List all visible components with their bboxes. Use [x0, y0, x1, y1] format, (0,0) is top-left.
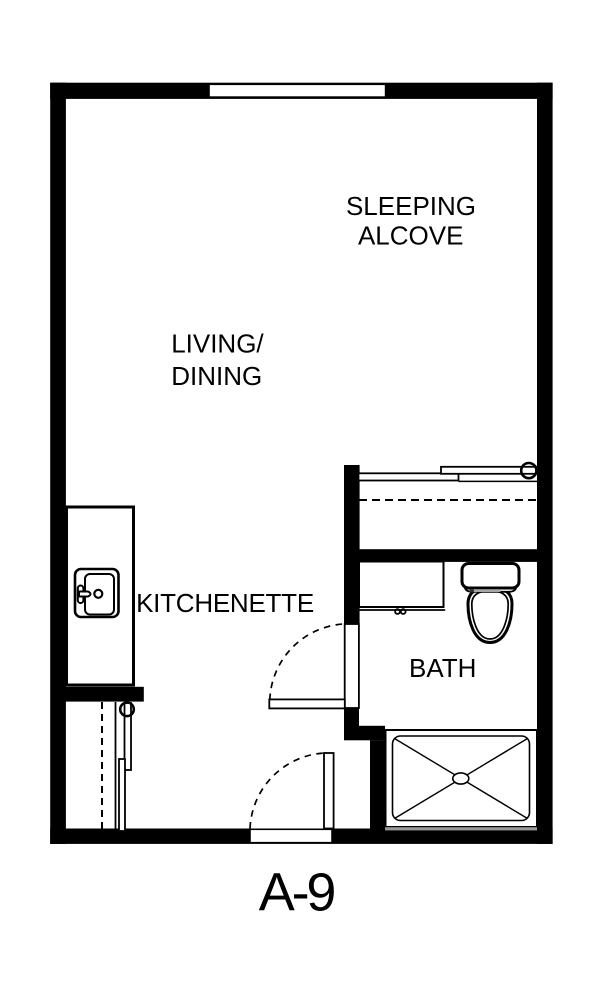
svg-text:ALCOVE: ALCOVE	[358, 221, 464, 251]
svg-text:DINING: DINING	[171, 361, 262, 391]
svg-text:BATH: BATH	[409, 653, 476, 683]
svg-text:A-9: A-9	[259, 863, 335, 923]
svg-text:LIVING/: LIVING/	[171, 329, 264, 359]
svg-text:SLEEPING: SLEEPING	[346, 191, 476, 221]
svg-text:KITCHENETTE: KITCHENETTE	[136, 588, 314, 618]
